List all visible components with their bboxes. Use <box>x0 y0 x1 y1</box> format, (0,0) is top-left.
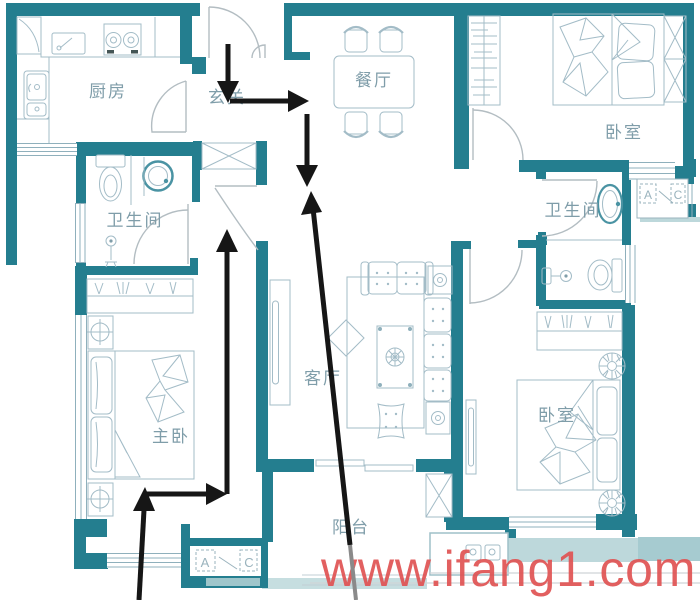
svg-text:主卧: 主卧 <box>152 427 190 446</box>
svg-text:A: A <box>201 555 210 570</box>
svg-text:C: C <box>674 188 683 202</box>
svg-text:卧室: 卧室 <box>538 406 576 425</box>
svg-text:A: A <box>644 188 652 202</box>
svg-text:卫生间: 卫生间 <box>545 201 602 220</box>
svg-text:www.ifang1.com: www.ifang1.com <box>320 541 696 597</box>
svg-text:卧室: 卧室 <box>605 123 643 142</box>
svg-text:餐厅: 餐厅 <box>355 71 393 90</box>
svg-text:厨房: 厨房 <box>89 82 127 101</box>
svg-text:客厅: 客厅 <box>304 369 342 388</box>
svg-text:卫生间: 卫生间 <box>107 211 164 230</box>
svg-text:C: C <box>244 555 253 570</box>
